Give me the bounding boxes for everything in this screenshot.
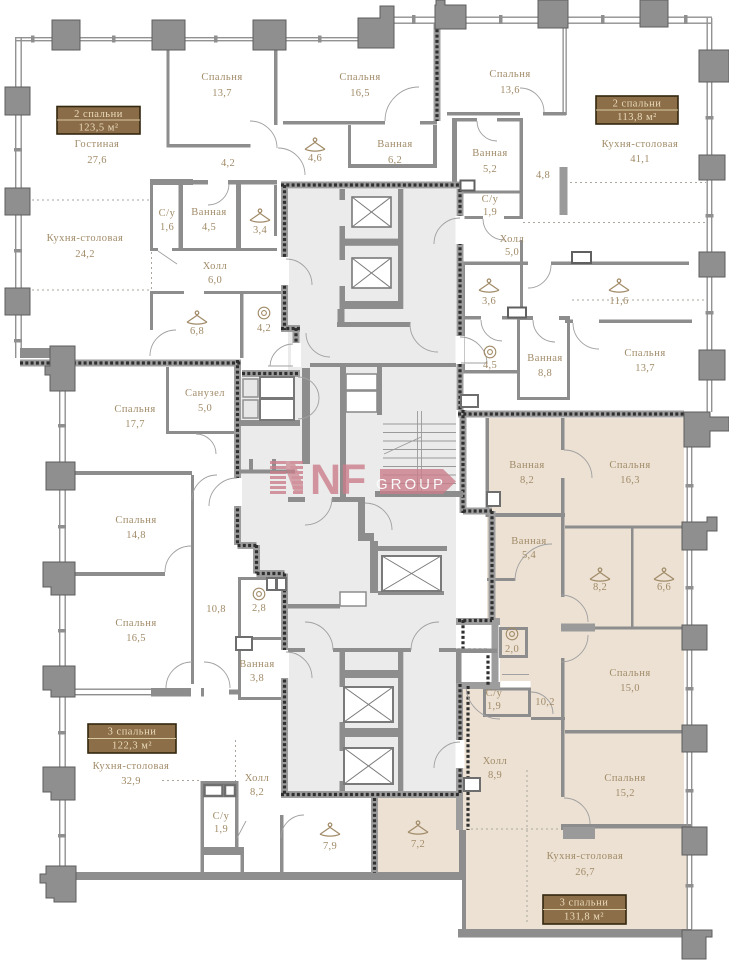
svg-text:Гостиная: Гостиная [75,139,120,150]
svg-text:8,2: 8,2 [250,787,264,798]
svg-text:С/у: С/у [482,194,499,205]
svg-text:5,0: 5,0 [198,403,212,414]
svg-text:10,2: 10,2 [535,697,555,708]
svg-text:Спальня: Спальня [624,348,665,359]
svg-text:Холл: Холл [203,261,228,272]
svg-text:16,3: 16,3 [620,475,640,486]
svg-text:1,6: 1,6 [160,222,174,233]
svg-text:3,8: 3,8 [250,673,264,684]
svg-text:8,2: 8,2 [593,582,607,593]
svg-text:Санузел: Санузел [185,388,225,399]
svg-text:8,2: 8,2 [520,475,534,486]
svg-text:Ванная: Ванная [511,536,546,547]
svg-text:Холл: Холл [500,234,525,245]
svg-text:Спальня: Спальня [489,69,530,80]
svg-text:Ванная: Ванная [191,207,226,218]
svg-text:8,8: 8,8 [538,368,552,379]
svg-text:122,3 м²: 122,3 м² [112,741,152,752]
svg-text:17,7: 17,7 [125,419,145,430]
svg-text:16,5: 16,5 [350,88,370,99]
svg-text:3 спальни: 3 спальни [108,727,157,738]
svg-text:Холл: Холл [483,756,508,767]
svg-text:4,2: 4,2 [257,323,271,334]
svg-text:15,0: 15,0 [620,683,640,694]
svg-text:Кухня-столовая: Кухня-столовая [93,761,170,772]
svg-text:С/у: С/у [159,208,176,219]
svg-text:Кухня-столовая: Кухня-столовая [547,851,624,862]
svg-text:Холл: Холл [245,773,270,784]
svg-text:1,9: 1,9 [214,824,228,835]
svg-text:113,8 м²: 113,8 м² [617,112,657,123]
svg-text:4,6: 4,6 [308,153,322,164]
svg-text:32,9: 32,9 [121,776,141,787]
svg-text:5,2: 5,2 [483,164,497,175]
svg-text:2,8: 2,8 [252,603,266,614]
svg-text:Ванная: Ванная [377,139,412,150]
svg-text:11,6: 11,6 [609,296,628,307]
svg-text:13,7: 13,7 [212,88,232,99]
svg-text:16,5: 16,5 [126,633,146,644]
svg-text:Ванная: Ванная [472,148,507,159]
svg-text:13,6: 13,6 [500,85,520,96]
svg-text:Кухня-столовая: Кухня-столовая [602,139,679,150]
svg-text:3 спальни: 3 спальни [560,898,609,909]
svg-text:26,7: 26,7 [575,867,595,878]
svg-text:6,6: 6,6 [657,582,671,593]
svg-text:131,8 м²: 131,8 м² [564,912,604,923]
svg-text:1,9: 1,9 [487,701,501,712]
svg-text:7,9: 7,9 [323,841,337,852]
svg-text:С/у: С/у [486,688,503,699]
svg-text:2 спальни: 2 спальни [74,109,123,120]
svg-text:4,8: 4,8 [536,170,550,181]
svg-text:41,1: 41,1 [630,154,650,165]
svg-text:Спальня: Спальня [201,72,242,83]
svg-text:6,2: 6,2 [388,155,402,166]
svg-text:Спальня: Спальня [115,618,156,629]
svg-text:5,4: 5,4 [522,550,536,561]
svg-text:5,0: 5,0 [505,247,519,258]
svg-text:3,6: 3,6 [482,296,496,307]
svg-text:8,9: 8,9 [488,770,502,781]
svg-text:15,2: 15,2 [615,788,635,799]
svg-text:1,9: 1,9 [483,207,497,218]
svg-text:2,0: 2,0 [505,644,519,655]
svg-text:Спальня: Спальня [114,404,155,415]
svg-text:GROUP: GROUP [376,476,446,493]
svg-text:123,5 м²: 123,5 м² [78,123,118,134]
svg-text:13,7: 13,7 [635,363,655,374]
svg-text:Спальня: Спальня [339,72,380,83]
svg-text:6,8: 6,8 [190,326,204,337]
svg-text:Спальня: Спальня [604,773,645,784]
svg-text:NF: NF [310,456,365,504]
svg-text:Ванная: Ванная [509,460,544,471]
svg-text:4,2: 4,2 [221,158,235,169]
svg-text:Ванная: Ванная [239,659,274,670]
svg-text:4,5: 4,5 [483,360,497,371]
svg-text:Ванная: Ванная [527,353,562,364]
svg-text:Спальня: Спальня [609,460,650,471]
svg-text:27,6: 27,6 [87,155,107,166]
svg-text:6,0: 6,0 [208,275,222,286]
svg-text:10,8: 10,8 [206,604,226,615]
svg-text:3,4: 3,4 [253,225,267,236]
svg-text:Спальня: Спальня [115,515,156,526]
svg-text:С/у: С/у [213,811,230,822]
svg-text:7,2: 7,2 [411,839,425,850]
svg-text:Кухня-столовая: Кухня-столовая [47,233,124,244]
svg-text:24,2: 24,2 [75,249,95,260]
svg-text:4,5: 4,5 [202,222,216,233]
svg-text:14,8: 14,8 [126,530,146,541]
svg-text:2 спальни: 2 спальни [613,99,662,110]
svg-text:Спальня: Спальня [609,668,650,679]
